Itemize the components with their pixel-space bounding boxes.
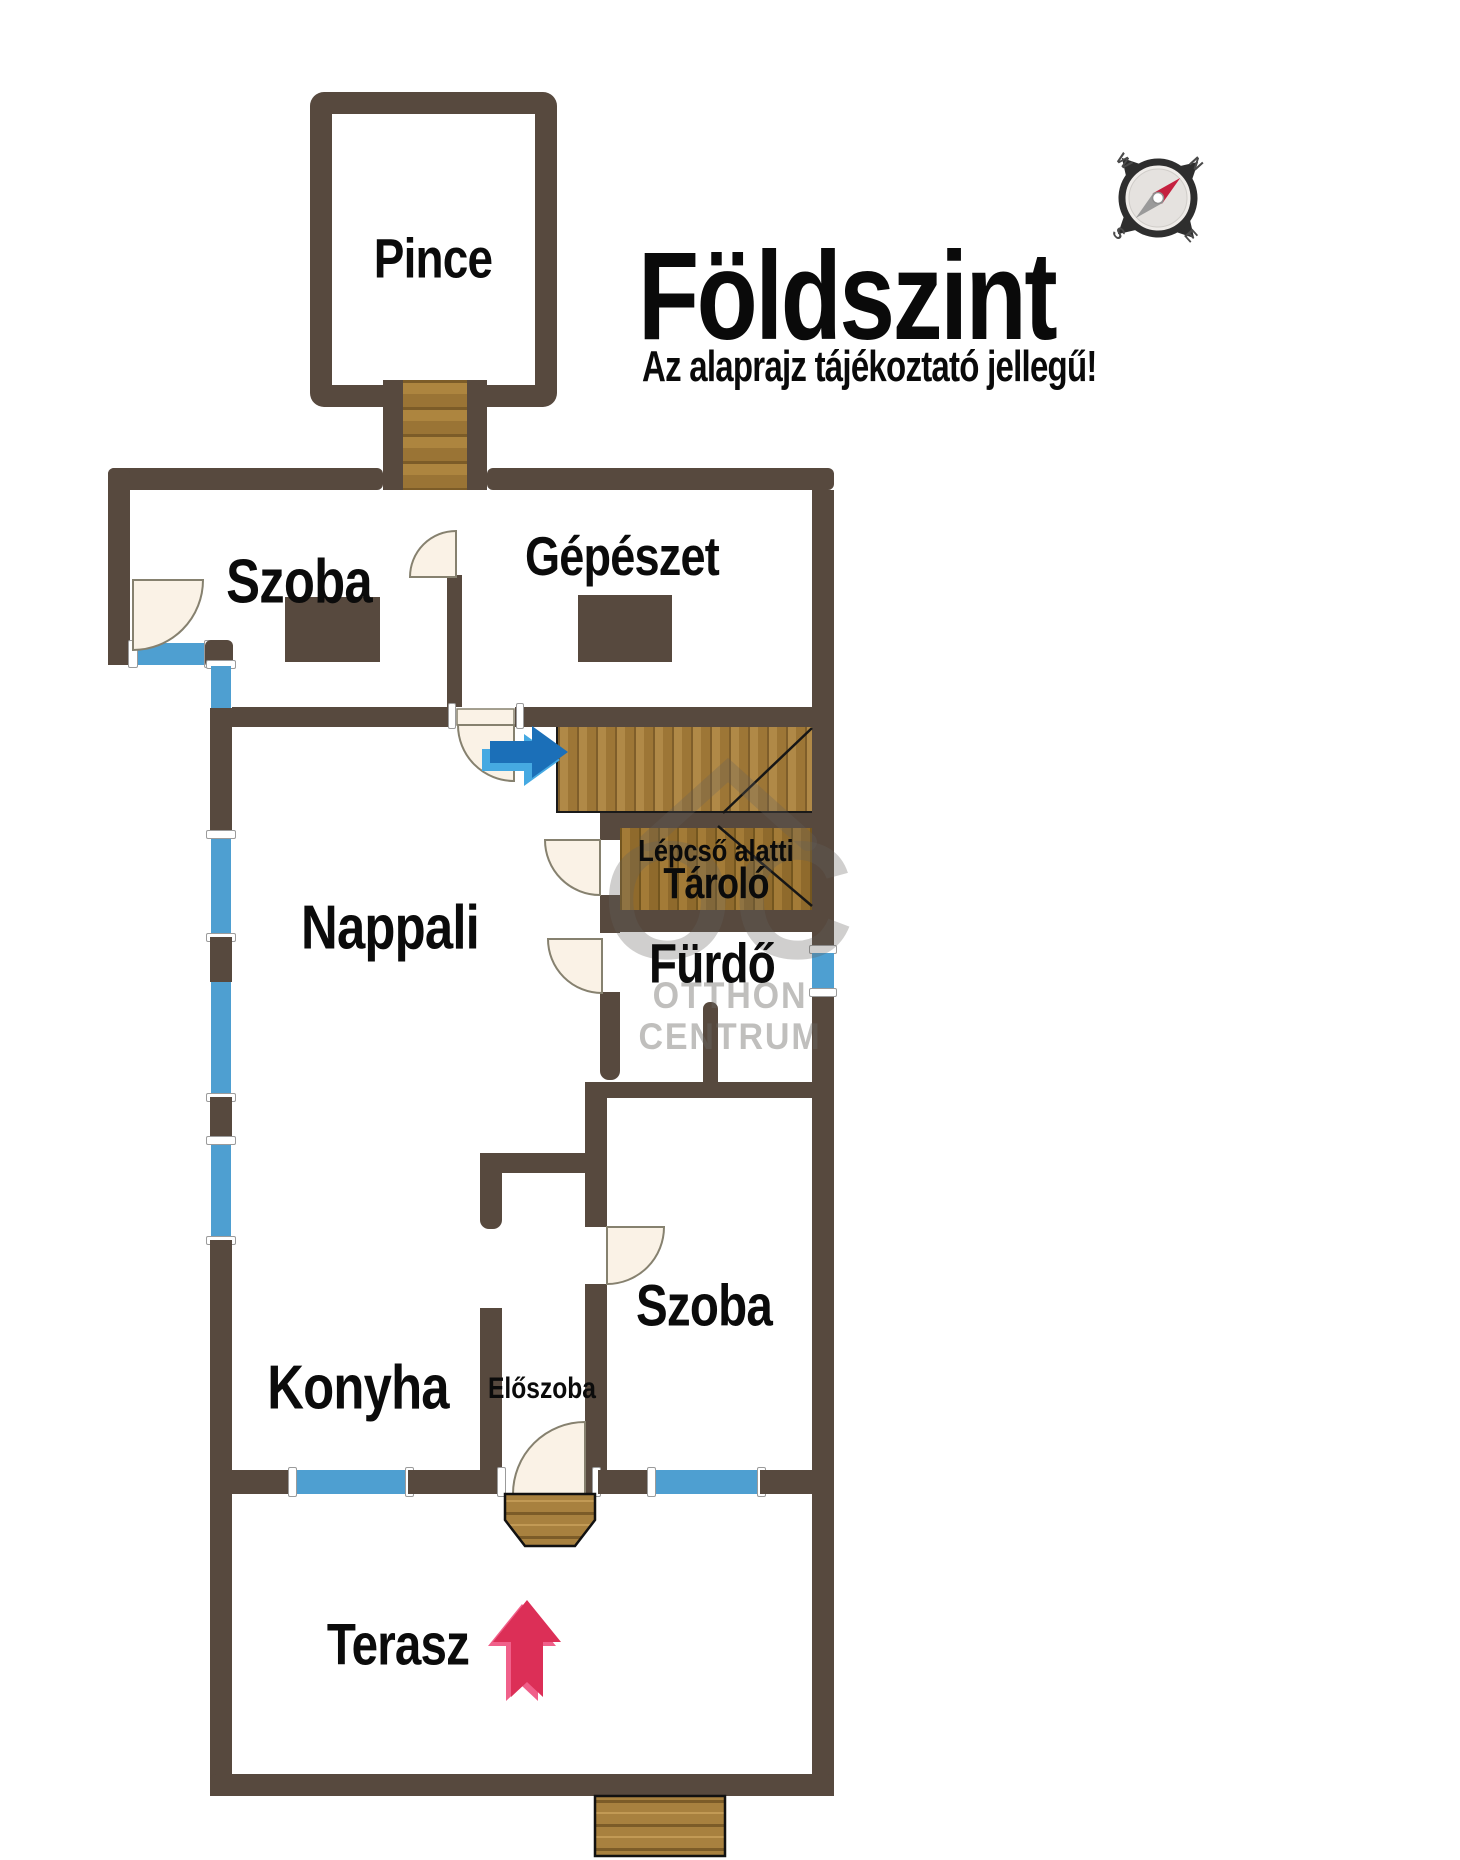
room-label-terasz: Terasz (327, 1612, 469, 1679)
room-label-konyha: Konyha (267, 1353, 449, 1424)
room-label-szoba-top: Szoba (226, 547, 372, 618)
room-label-szoba-lower: Szoba (636, 1273, 772, 1340)
floorplan-canvas: OC OTTHON CENTRUM Pince Szoba Gépészet N… (0, 0, 1460, 1860)
room-label-nappali: Nappali (301, 893, 479, 964)
watermark-line2: CENTRUM (638, 1016, 821, 1058)
room-label-eloszoba: Előszoba (488, 1372, 596, 1406)
room-label-gepeszet: Gépészet (525, 524, 719, 588)
room-label-furdo: Fürdő (649, 931, 775, 996)
room-label-tarolo-line2: Tároló (663, 859, 768, 909)
compass-icon: N E S W (1096, 136, 1220, 260)
page-subtitle: Az alaprajz tájékoztató jellegű! (642, 342, 1097, 392)
room-label-pince: Pince (374, 226, 492, 291)
